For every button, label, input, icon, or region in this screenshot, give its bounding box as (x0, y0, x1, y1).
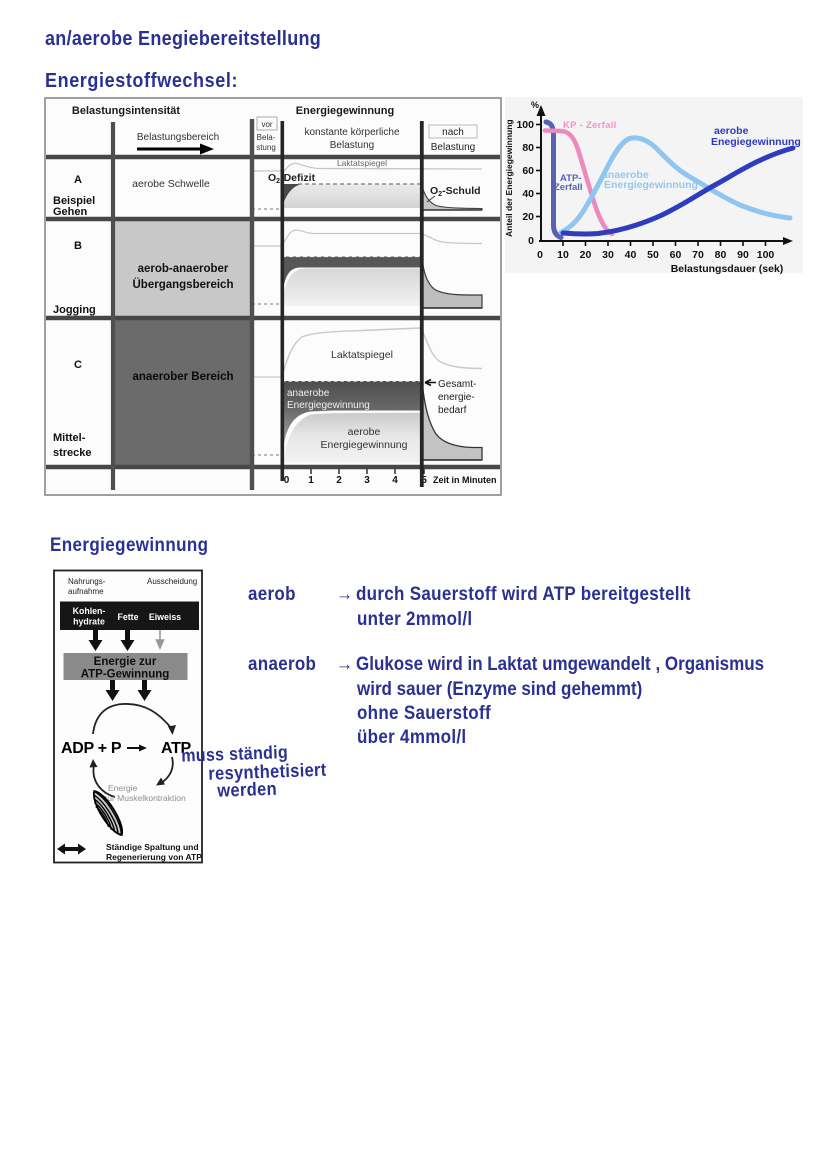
svg-text:vor: vor (261, 120, 272, 129)
svg-text:aerobe: aerobe (348, 426, 381, 438)
svg-text:Belastungsbereich: Belastungsbereich (137, 132, 219, 143)
svg-text:70: 70 (692, 249, 704, 261)
svg-text:Energiegewinnung: Energiegewinnung (604, 179, 698, 191)
svg-text:nach: nach (442, 127, 464, 138)
svg-text:ATP-Gewinnung: ATP-Gewinnung (81, 669, 170, 681)
svg-text:4: 4 (392, 475, 398, 486)
svg-text:Übergangsbereich: Übergangsbereich (133, 278, 234, 291)
svg-text:Energiegewinnung: Energiegewinnung (296, 105, 394, 117)
svg-text:aufnahme: aufnahme (68, 587, 104, 596)
svg-text:Nahrungs-: Nahrungs- (68, 577, 106, 586)
svg-text:Enegiegewinnung: Enegiegewinnung (711, 136, 801, 148)
svg-text:Regenerierung von ATP: Regenerierung von ATP (106, 852, 202, 862)
svg-text:Zeit in Minuten: Zeit in Minuten (433, 475, 497, 485)
svg-text:bedarf: bedarf (438, 405, 467, 416)
svg-text:Kohlen-: Kohlen- (73, 606, 106, 616)
svg-text:O2-Schuld: O2-Schuld (430, 185, 481, 198)
svg-text:aerobe Schwelle: aerobe Schwelle (132, 178, 210, 190)
svg-text:Eiweiss: Eiweiss (149, 612, 181, 622)
svg-text:Laktatspiegel: Laktatspiegel (337, 158, 387, 168)
svg-text:Energiegewinnung: Energiegewinnung (287, 400, 370, 411)
svg-text:0: 0 (537, 249, 543, 261)
svg-text:2: 2 (336, 475, 342, 486)
svg-text:A: A (74, 174, 82, 186)
svg-text:anaerobe: anaerobe (287, 388, 330, 399)
svg-text:anaerober Bereich: anaerober Bereich (133, 371, 234, 383)
svg-text:O2-Defizit: O2-Defizit (268, 172, 316, 185)
svg-text:aerob-anaerober: aerob-anaerober (138, 263, 229, 275)
svg-text:strecke: strecke (53, 447, 92, 459)
svg-text:80: 80 (522, 142, 534, 154)
svg-text:60: 60 (670, 249, 682, 261)
svg-text:100: 100 (757, 249, 775, 261)
svg-text:Jogging: Jogging (53, 304, 96, 316)
svg-text:50: 50 (647, 249, 659, 261)
svg-text:Belastung: Belastung (431, 142, 475, 153)
svg-text:B: B (74, 240, 82, 252)
svg-text:60: 60 (522, 165, 534, 177)
svg-text:Ständige Spaltung und: Ständige Spaltung und (106, 842, 199, 852)
svg-text:konstante körperliche: konstante körperliche (304, 127, 399, 138)
svg-text:Belastungsintensität: Belastungsintensität (72, 105, 181, 117)
svg-text:Zerfall: Zerfall (554, 182, 583, 193)
svg-text:20: 20 (522, 211, 534, 223)
svg-text:Laktatspiegel: Laktatspiegel (331, 349, 393, 361)
svg-text:hydrate: hydrate (73, 617, 105, 627)
svg-text:zur Muskelkontraktion: zur Muskelkontraktion (103, 793, 186, 803)
svg-text:C: C (74, 359, 82, 371)
svg-text:%: % (531, 100, 539, 110)
svg-text:Belastung: Belastung (330, 140, 374, 151)
svg-text:0: 0 (284, 475, 290, 486)
svg-text:0: 0 (528, 235, 534, 247)
svg-text:stung: stung (256, 143, 276, 152)
svg-text:Fette: Fette (117, 612, 138, 622)
svg-text:1: 1 (308, 475, 314, 486)
svg-text:80: 80 (715, 249, 727, 261)
svg-text:10: 10 (557, 249, 569, 261)
svg-text:Anteil der Energiegewinnung: Anteil der Energiegewinnung (505, 119, 514, 237)
svg-text:40: 40 (522, 188, 534, 200)
svg-text:100: 100 (516, 119, 534, 131)
svg-text:Energiegewinnung: Energiegewinnung (321, 439, 408, 451)
svg-text:Gehen: Gehen (53, 206, 88, 218)
svg-text:90: 90 (737, 249, 749, 261)
svg-text:Bela-: Bela- (257, 133, 276, 142)
svg-text:Ausscheidung: Ausscheidung (147, 577, 197, 586)
svg-text:Energie: Energie (108, 783, 138, 793)
svg-text:40: 40 (625, 249, 637, 261)
svg-text:energie-: energie- (438, 392, 475, 403)
svg-text:KP - Zerfall: KP - Zerfall (563, 120, 617, 131)
svg-text:20: 20 (580, 249, 592, 261)
svg-text:30: 30 (602, 249, 614, 261)
svg-text:Energie zur: Energie zur (94, 656, 157, 668)
svg-text:3: 3 (364, 475, 370, 486)
svg-text:Gesamt-: Gesamt- (438, 379, 476, 390)
svg-text:Mittel-: Mittel- (53, 432, 86, 444)
svg-text:ADP + P: ADP + P (61, 740, 122, 757)
svg-text:Belastungsdauer (sek): Belastungsdauer (sek) (671, 263, 784, 275)
